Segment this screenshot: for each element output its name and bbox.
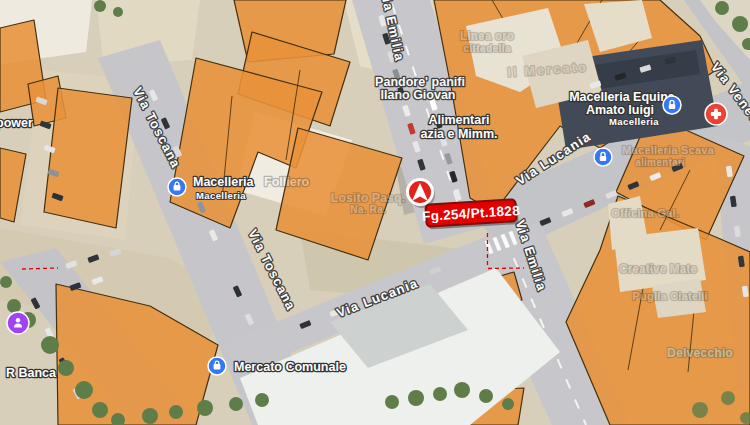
place-label-officina: Officina Gal.	[611, 207, 679, 219]
place-label-power[interactable]: power	[0, 116, 33, 130]
lock-icon[interactable]	[594, 148, 612, 166]
place-label-alimentari-faint: alimentari	[635, 156, 685, 168]
place-label-pandore-2[interactable]: llano Giovan	[380, 88, 455, 102]
place-label-r-banca[interactable]: R Banca	[6, 366, 57, 380]
place-label-macelleria-scava: Macelleria Scava	[622, 144, 715, 156]
place-label-folliero-2: Folliero	[264, 175, 310, 189]
place-label-creative-mate: Creative Mate	[619, 262, 697, 276]
place-label-equina-category: Macelleria	[609, 116, 659, 127]
place-label-pandore-1[interactable]: Pandore' panifi	[375, 75, 465, 89]
place-label-folliero-category: Macelleria	[196, 190, 246, 201]
place-label-linea-oro: Linea oro	[460, 29, 514, 43]
place-label-losito-2: Na. Ra.	[350, 203, 386, 215]
place-label-alimentari-2[interactable]: azia e Mimm.	[420, 127, 497, 141]
map-canvas[interactable]: Linea oro cittadella Il Mercato Losito P…	[0, 0, 750, 425]
place-label-cittadella: cittadella	[463, 42, 512, 54]
place-label-equina-2[interactable]: Amato luigi	[586, 103, 654, 117]
market-icon[interactable]	[208, 357, 226, 375]
butcher-shop-icon[interactable]	[168, 178, 186, 196]
clothing-store-icon[interactable]	[7, 312, 29, 334]
place-label-folliero-1[interactable]: Macelleria	[193, 175, 255, 189]
place-label-equina-1[interactable]: Macelleria Equina	[569, 90, 676, 104]
place-label-alimentari-1[interactable]: Alimentari	[428, 113, 489, 127]
place-label-puglia-ciatelli: Puglia Ciatelli	[632, 290, 707, 302]
place-label-delvecchio: Delvecchio	[667, 346, 733, 360]
health-cross-icon[interactable]	[705, 103, 727, 125]
lock-icon[interactable]	[663, 96, 681, 114]
place-label-mercato-comunale[interactable]: Mercato Comunale	[234, 360, 346, 374]
